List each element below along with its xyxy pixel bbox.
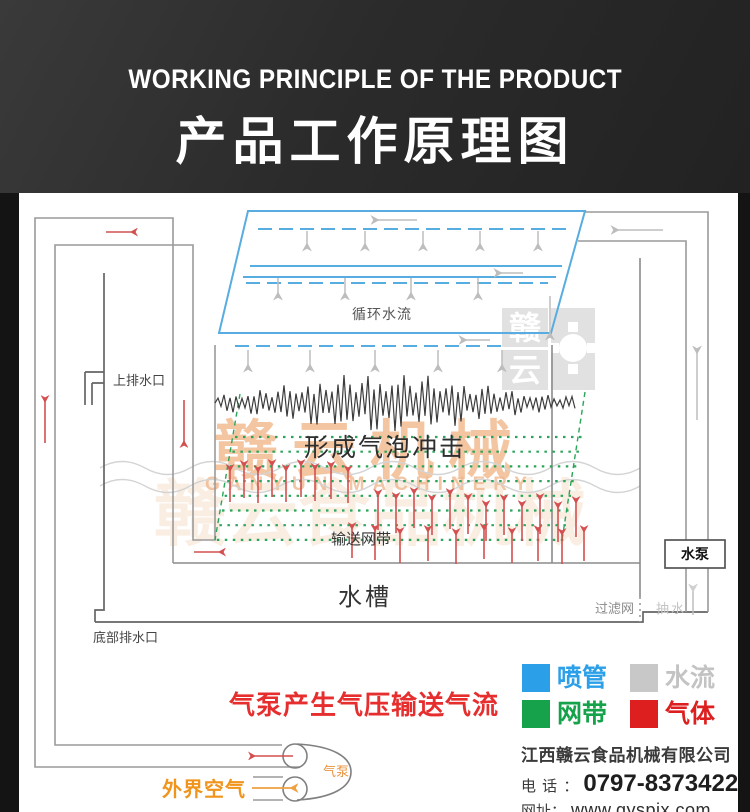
label-bubble-impact: 形成气泡冲击 (304, 434, 466, 462)
label-circulating-water: 循环水流 (352, 306, 412, 322)
website-url: www.gyspjx.com (571, 800, 711, 812)
label-outside-air: 外界空气 (162, 777, 246, 801)
legend: 喷管 水流 网带 气体 (522, 663, 738, 735)
water-flow-arrows (248, 220, 697, 615)
agitated-water-waveform (215, 375, 575, 431)
label-water-tank: 水槽 (338, 584, 392, 611)
legend-label-mesh-belt: 网带 (557, 700, 607, 728)
legend-label-spray-pipe: 喷管 (557, 664, 607, 692)
legend-swatch-mesh-belt (522, 700, 550, 728)
legend-swatch-spray-pipe (522, 664, 550, 692)
legend-label-gas: 气体 (665, 700, 715, 728)
label-conveyor-belt: 输送网带 (331, 531, 391, 548)
phone-label: 电 话 ： (521, 775, 579, 796)
label-water-pump: 水泵 (681, 546, 709, 562)
legend-label-water-flow: 水流 (665, 664, 715, 692)
label-filter-mesh: 过滤网 (595, 601, 634, 616)
company-name: 江西赣云食品机械有限公司 (521, 741, 738, 766)
website-label: 网址： (521, 800, 566, 812)
label-air-pump: 气泵 (323, 764, 349, 779)
spray-lid (219, 211, 585, 346)
phone-number: 0797-8373422 (583, 770, 738, 798)
legend-swatch-water-flow (630, 664, 658, 692)
label-bottom-drain: 底部排水口 (93, 630, 158, 645)
company-info: 江西赣云食品机械有限公司 电 话 ： 0797-8373422 网址： www.… (521, 741, 738, 812)
page: WORKING PRINCIPLE OF THE PRODUCT 产品工作原理图… (0, 0, 750, 812)
caption-air-pressure: 气泵产生气压输送气流 (228, 690, 499, 720)
legend-swatch-gas (630, 700, 658, 728)
gas-flow-arrows (45, 232, 584, 756)
label-upper-drain: 上排水口 (113, 373, 165, 388)
label-pump-water: 抽水 (656, 601, 686, 616)
